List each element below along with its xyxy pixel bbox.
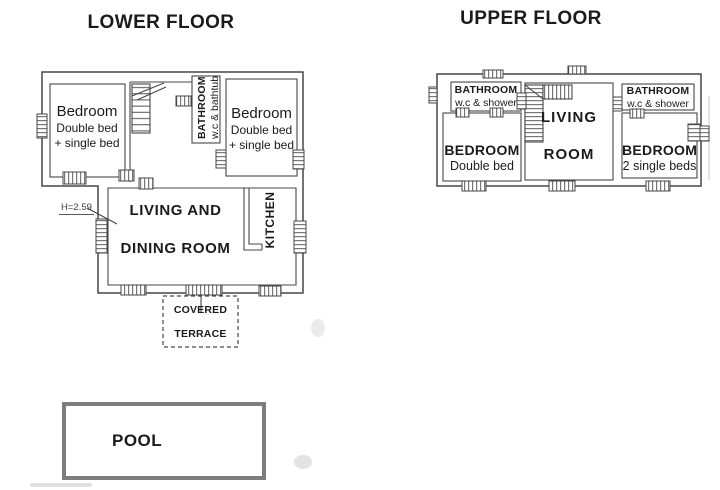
room-detail: Double bed (46, 121, 128, 136)
room-detail: w.c & bathtub (209, 51, 222, 139)
lower-bedroom-left-label: Bedroom Double bed + single bed (46, 102, 128, 151)
room-name: BATHROOM (622, 85, 694, 98)
room-name: Bedroom (46, 102, 128, 121)
lower-floor-title: LOWER FLOOR (30, 12, 292, 34)
room-detail: 2 single beds (622, 159, 697, 174)
upper-living-room-label: LIVING ROOM (525, 110, 613, 163)
covered-terrace-label: COVERED TERRACE (163, 304, 238, 341)
room-name: BEDROOM (443, 142, 521, 159)
pool-label: POOL (112, 431, 162, 451)
ceiling-height-annotation: H=2.59 (59, 197, 94, 215)
room-name: BEDROOM (622, 142, 697, 159)
room-name-line2: DINING ROOM (108, 241, 243, 257)
room-detail: + single bed (46, 136, 128, 151)
room-detail: Double bed (222, 123, 301, 138)
upper-bedroom-left-label: BEDROOM Double bed (443, 142, 521, 174)
kitchen-label: KITCHEN (263, 188, 279, 252)
room-name: BATHROOM (451, 84, 521, 97)
room-name-line1: LIVING (525, 110, 613, 126)
room-name-line2: ROOM (525, 147, 613, 163)
floor-plan-canvas: LOWER FLOOR Bedroom Double bed + single … (0, 0, 720, 490)
room-detail: w.c & shower (622, 98, 694, 111)
living-dining-label: LIVING AND DINING ROOM (108, 203, 243, 257)
upper-bedroom-right-label: BEDROOM 2 single beds (622, 142, 697, 174)
upper-bathroom-left-label: BATHROOM w.c & shower (451, 84, 521, 110)
room-name-line1: LIVING AND (108, 203, 243, 219)
height-value: H=2.59 (59, 202, 94, 215)
lower-bathroom-label: BATHROOM w.c & bathtub (196, 51, 224, 139)
room-detail: + single bed (222, 138, 301, 153)
room-detail: w.c & shower (451, 97, 521, 110)
terrace-line1: COVERED (163, 304, 238, 317)
lower-bedroom-right-label: Bedroom Double bed + single bed (222, 104, 301, 153)
room-detail: Double bed (443, 159, 521, 174)
pool-outline: POOL (62, 402, 266, 480)
room-name: BATHROOM (196, 51, 209, 139)
upper-bathroom-right-label: BATHROOM w.c & shower (622, 85, 694, 111)
upper-floor-title: UPPER FLOOR (420, 8, 642, 30)
room-name: Bedroom (222, 104, 301, 123)
terrace-line2: TERRACE (163, 328, 238, 341)
